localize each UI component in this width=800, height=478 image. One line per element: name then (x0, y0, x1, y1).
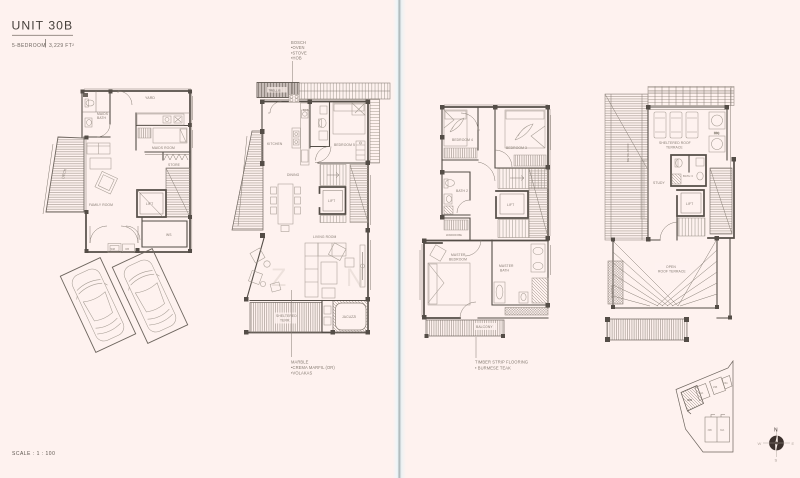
svg-text:WS: WS (166, 233, 172, 237)
svg-text:FAMILY ROOM: FAMILY ROOM (89, 203, 113, 207)
svg-text:•CREMA MARFIL (OR): •CREMA MARFIL (OR) (291, 365, 335, 370)
svg-text:BATH: BATH (500, 269, 510, 273)
svg-text:OPEN: OPEN (666, 265, 676, 269)
svg-text:30A: 30A (699, 392, 704, 395)
svg-text:•VOLAKAS: •VOLAKAS (291, 371, 313, 376)
svg-text:STUDY: STUDY (653, 181, 666, 185)
svg-text:SCALE : 1 : 100: SCALE : 1 : 100 (12, 451, 55, 457)
svg-text:3,229 FT²: 3,229 FT² (49, 43, 74, 49)
svg-text:LIFT: LIFT (146, 202, 153, 206)
svg-text:•HOB: •HOB (291, 56, 302, 61)
svg-text:5-BEDROOM: 5-BEDROOM (12, 43, 46, 49)
svg-text:BEDROOM 3: BEDROOM 3 (506, 146, 527, 150)
svg-text:BATH 2: BATH 2 (456, 189, 468, 193)
svg-text:TRELLIS: TRELLIS (269, 89, 281, 93)
svg-text:BEDROOM 4: BEDROOM 4 (452, 138, 473, 142)
svg-text:JACUZZI: JACUZZI (342, 315, 356, 319)
svg-text:MARBLE: MARBLE (291, 360, 309, 365)
svg-text:30B: 30B (687, 398, 692, 402)
svg-text:BEDROOM 5: BEDROOM 5 (334, 143, 355, 147)
svg-text:DB: DB (126, 248, 130, 251)
svg-text:LIFT: LIFT (686, 202, 693, 206)
svg-text:SHELTERED: SHELTERED (276, 314, 297, 318)
svg-text:TERRACE: TERRACE (666, 146, 683, 150)
svg-text:PLANTER: PLANTER (610, 285, 614, 298)
svg-text:ROOF TERRACE: ROOF TERRACE (658, 270, 686, 274)
svg-text:UNIT 30B: UNIT 30B (12, 19, 74, 33)
svg-text:30B: 30B (708, 429, 713, 432)
svg-text:30A: 30A (720, 429, 725, 432)
svg-text:BATH: BATH (97, 116, 107, 120)
svg-text:BEDROOM: BEDROOM (449, 258, 467, 262)
svg-text:STORE: STORE (168, 163, 181, 167)
svg-text:TIMBER STRIP FLOORING: TIMBER STRIP FLOORING (475, 360, 528, 365)
svg-text:WARDROBE: WARDROBE (446, 233, 462, 237)
svg-text:BATH: BATH (303, 108, 310, 112)
svg-text:DINING: DINING (287, 173, 300, 177)
svg-text:MASTER: MASTER (451, 253, 466, 257)
svg-text:W: W (758, 441, 762, 446)
svg-text:N: N (346, 264, 364, 292)
svg-text:Z: Z (271, 264, 286, 292)
svg-text:LIFT: LIFT (328, 199, 335, 203)
svg-text:TERR.: TERR. (280, 319, 291, 323)
svg-text:MASTER: MASTER (499, 264, 514, 268)
svg-text:METAL ROOF: METAL ROOF (626, 143, 630, 162)
svg-text:SHELTERED ROOF: SHELTERED ROOF (659, 141, 691, 145)
svg-text:N: N (774, 428, 778, 434)
svg-text:YARD: YARD (145, 96, 155, 100)
svg-text:29B: 29B (713, 386, 718, 389)
svg-text:E: E (792, 441, 795, 446)
svg-text:LIFT: LIFT (507, 203, 514, 207)
svg-text:• BURMESE TEAK: • BURMESE TEAK (475, 366, 511, 371)
svg-text:LIVING ROOM: LIVING ROOM (313, 235, 337, 239)
svg-text:BBQ: BBQ (714, 132, 719, 135)
svg-text:BALCONY: BALCONY (476, 325, 493, 329)
svg-text:MAIDS ROOM: MAIDS ROOM (152, 146, 175, 150)
svg-text:29A: 29A (724, 382, 729, 385)
svg-text:KITCHEN: KITCHEN (267, 142, 283, 146)
svg-text:S: S (775, 458, 778, 463)
svg-text:WM: WM (111, 248, 115, 251)
svg-text:BATH 3: BATH 3 (683, 174, 693, 178)
